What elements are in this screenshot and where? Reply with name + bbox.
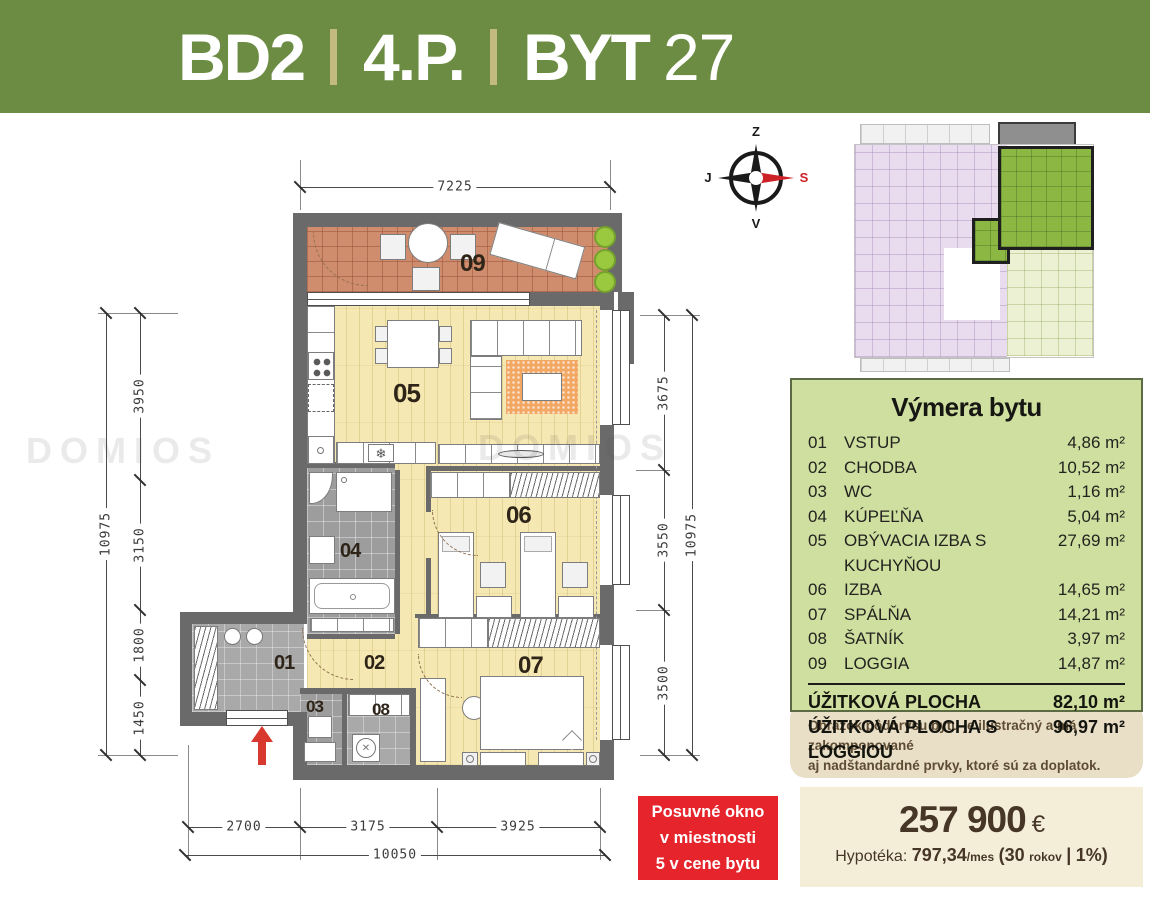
window-room-07	[612, 645, 630, 740]
coffee-table	[522, 373, 562, 401]
wall	[180, 612, 192, 724]
room-name: CHODBA	[844, 456, 1058, 481]
minimap-balcony-strip	[860, 358, 1010, 372]
worktop-dashed	[308, 384, 334, 412]
area-row: 02CHODBA10,52 m²	[808, 456, 1125, 481]
extension-line	[437, 788, 438, 860]
room-name: LOGGIA	[844, 652, 1058, 677]
wall	[426, 558, 431, 618]
mortgage-years-word: rokov	[1029, 850, 1062, 864]
room-02-label: 02	[364, 652, 384, 675]
wall	[342, 694, 347, 765]
header-banner: BD2 4.P. BYT 27	[0, 0, 1150, 113]
room-area: 5,04 m²	[1067, 505, 1125, 530]
currency-symbol: €	[1032, 811, 1044, 838]
washbasin	[308, 716, 332, 738]
dimension-label: 3175	[346, 820, 389, 835]
area-row: 04KÚPEĽŇA5,04 m²	[808, 505, 1125, 530]
room-area: 27,69 m²	[1058, 529, 1125, 578]
room-number: 06	[808, 578, 844, 603]
room-area: 14,65 m²	[1058, 578, 1125, 603]
total-label: ÚŽITKOVÁ PLOCHA	[808, 690, 1053, 715]
kitchen-sink	[308, 436, 334, 464]
wall	[293, 213, 622, 227]
dimension-label: 10050	[369, 848, 421, 863]
dimension-label: 3550	[657, 518, 672, 561]
blanket-fold	[562, 730, 582, 750]
dimension-label: 3150	[133, 523, 148, 566]
chair	[412, 267, 440, 291]
corner-sofa	[470, 320, 582, 356]
window-plane-dashed-line	[596, 310, 597, 740]
wall	[410, 694, 416, 765]
arrow-head	[251, 726, 273, 742]
desk	[562, 562, 588, 588]
dimension-label: 1450	[133, 696, 148, 739]
stool	[224, 628, 241, 645]
wall	[600, 292, 614, 310]
price-amount-row: 257 900€	[800, 799, 1143, 841]
wardrobe-hangers	[488, 618, 600, 648]
compass-east-label: V	[752, 216, 761, 231]
bathtub-drain	[350, 594, 356, 600]
entrance-door	[226, 710, 288, 726]
building-floorplate-minimap	[848, 118, 1100, 376]
room-name: IZBA	[844, 578, 1058, 603]
separator-bar	[490, 29, 497, 85]
entrance-arrow-icon	[250, 726, 274, 768]
washing-machine-drum: ✕	[356, 738, 376, 758]
floor-number: 4.P.	[363, 24, 464, 90]
mortgage-line: Hypotéka: 797,34/mes (30 rokov | 1%)	[800, 845, 1143, 866]
mortgage-per: /mes	[967, 850, 994, 864]
bathtub	[309, 578, 395, 614]
entry-wardrobe-hangers	[194, 626, 218, 710]
corner-sofa	[470, 356, 502, 420]
bench	[558, 596, 594, 618]
room-04-label: 04	[340, 540, 360, 563]
dimension-label: 1800	[133, 623, 148, 666]
dimension-label: 10975	[685, 509, 700, 561]
dimension-label: 3675	[657, 371, 672, 414]
floor-plan: 09 ❄ 05 04 06	[180, 210, 640, 790]
mortgage-rate: 1%	[1076, 845, 1102, 865]
room-name: ŠATNÍK	[844, 627, 1067, 652]
area-row: 09LOGGIA14,87 m²	[808, 652, 1125, 677]
dimension-label: 2700	[222, 820, 265, 835]
desk	[480, 562, 506, 588]
dimension-label: 3925	[496, 820, 539, 835]
dimension-label: 3500	[657, 661, 672, 704]
room-name: KÚPEĽŇA	[844, 505, 1067, 530]
area-row: 06IZBA14,65 m²	[808, 578, 1125, 603]
feature-highlight-box: Posuvné okno v miestnosti 5 v cene bytu	[638, 796, 778, 880]
round-table	[408, 223, 448, 263]
toilet	[304, 742, 336, 762]
extension-line	[188, 745, 189, 860]
room-number: 09	[808, 652, 844, 677]
wall	[288, 712, 307, 726]
total-row: ÚŽITKOVÁ PLOCHA82,10 m²	[808, 690, 1125, 715]
room-number: 04	[808, 505, 844, 530]
dimension-label: 10975	[99, 508, 114, 560]
flyer-canvas: BD2 4.P. BYT 27 Z V J S DOMI	[0, 0, 1150, 905]
wall	[530, 292, 600, 306]
bench	[476, 596, 512, 618]
area-table-title: Výmera bytu	[808, 392, 1125, 423]
plant-icon	[594, 271, 616, 293]
sink-drain	[317, 447, 324, 454]
room-number: 02	[808, 456, 844, 481]
highlight-line: Posuvné okno	[638, 799, 778, 825]
bed-single	[520, 532, 556, 618]
lamp-icon	[589, 755, 597, 763]
compass-west-label: Z	[752, 124, 760, 139]
area-table-panel: Výmera bytu 01VSTUP4,86 m² 02CHODBA10,52…	[790, 378, 1143, 712]
paren-close: )	[1102, 845, 1108, 865]
minimap-adjacent-unit	[1007, 250, 1093, 356]
area-row: 01VSTUP4,86 m²	[808, 431, 1125, 456]
dimension-label: 3950	[133, 374, 148, 417]
pillow	[524, 536, 552, 552]
area-row: 08ŠATNÍK3,97 m²	[808, 627, 1125, 652]
room-01-label: 01	[274, 652, 294, 675]
room-number: 05	[808, 529, 844, 578]
washing-machine-icon: ✕	[352, 734, 380, 762]
table-divider	[808, 683, 1125, 685]
room-name: OBÝVACIA IZBA S KUCHYŇOU	[844, 529, 1058, 578]
room-name: WC	[844, 480, 1067, 505]
price-panel: 257 900€ Hypotéka: 797,34/mes (30 rokov …	[800, 787, 1143, 887]
separator-bar	[330, 29, 337, 85]
total-area: 96,97 m²	[1053, 715, 1125, 765]
room-05-label: 05	[393, 378, 420, 409]
mortgage-payment: 797,34	[912, 845, 967, 865]
unit-number: 27	[663, 24, 734, 90]
washer	[336, 472, 392, 512]
room-number: 08	[808, 627, 844, 652]
freezer-snowflake-icon: ❄	[368, 444, 394, 462]
wall	[293, 292, 307, 624]
room-03-label: 03	[306, 697, 323, 717]
highlight-line: 5 v cene bytu	[638, 851, 778, 877]
nightstand-lamp	[586, 752, 600, 766]
lamp-icon	[466, 755, 474, 763]
room-area: 14,21 m²	[1058, 603, 1125, 628]
room-name: SPÁLŇA	[844, 603, 1058, 628]
watermark: DOMIOS	[26, 430, 220, 472]
mortgage-years: 30	[1005, 845, 1025, 865]
washer-knob	[341, 477, 347, 483]
room-06-label: 06	[506, 502, 531, 530]
compass-rose-icon: Z V J S	[700, 124, 812, 232]
nightstand	[480, 752, 526, 766]
room-number: 01	[808, 431, 844, 456]
nightstand	[538, 752, 584, 766]
sliding-window-room-05	[307, 292, 530, 306]
room-name: VSTUP	[844, 431, 1067, 456]
area-row: 07SPÁLŇA14,21 m²	[808, 603, 1125, 628]
room-area: 1,16 m²	[1067, 480, 1125, 505]
bed-double	[480, 676, 584, 750]
wardrobe-hangers	[510, 472, 600, 498]
compass-south-label: J	[704, 170, 711, 185]
stove-burners-icon	[308, 352, 334, 380]
mortgage-separator: |	[1066, 845, 1071, 865]
wardrobe-shelves	[418, 618, 488, 648]
minimap-highlighted-unit	[998, 146, 1094, 250]
minimap-balcony-strip	[860, 124, 990, 144]
room-number: 03	[808, 480, 844, 505]
stool	[246, 628, 263, 645]
total-area: 82,10 m²	[1053, 690, 1125, 715]
unit-type: BYT	[523, 24, 649, 90]
dimension-label: 7225	[433, 180, 476, 195]
room-area: 3,97 m²	[1067, 627, 1125, 652]
nightstand-lamp	[462, 752, 478, 766]
wall	[395, 470, 400, 634]
highlight-line: v miestnosti	[638, 825, 778, 851]
dining-table	[387, 320, 439, 368]
wall	[293, 213, 307, 292]
room-number: 07	[808, 603, 844, 628]
dining-chair	[439, 326, 452, 342]
wall	[600, 585, 614, 645]
room-area: 14,87 m²	[1058, 652, 1125, 677]
room-09-label: 09	[460, 250, 485, 278]
room-area: 4,86 m²	[1067, 431, 1125, 456]
area-row: 05OBÝVACIA IZBA S KUCHYŇOU27,69 m²	[808, 529, 1125, 578]
window-room-06	[612, 495, 630, 585]
wardrobe-shelves	[430, 472, 510, 498]
chair	[380, 234, 406, 260]
extension-line	[300, 788, 301, 860]
plant-icon	[594, 226, 616, 248]
mortgage-label: Hypotéka:	[835, 848, 907, 865]
price-amount: 257 900	[899, 799, 1026, 840]
wall	[293, 765, 614, 780]
area-row: 03WC1,16 m²	[808, 480, 1125, 505]
compass-north-label: S	[800, 170, 809, 185]
watermark: DOMIOS	[478, 427, 672, 469]
total-label: ÚŽITKOVÁ PLOCHA S LOGGIOU	[808, 715, 1053, 765]
bathroom-sink	[309, 536, 335, 564]
wall	[180, 612, 293, 624]
dining-chair	[439, 348, 452, 364]
window-room-05	[612, 310, 630, 425]
room-area: 10,52 m²	[1058, 456, 1125, 481]
arrow-stem	[258, 741, 266, 765]
plant-icon	[594, 249, 616, 271]
total-row: ÚŽITKOVÁ PLOCHA S LOGGIOU96,97 m²	[808, 715, 1125, 765]
room-08-label: 08	[372, 700, 389, 720]
project-code: BD2	[178, 24, 304, 90]
wall	[180, 712, 226, 726]
